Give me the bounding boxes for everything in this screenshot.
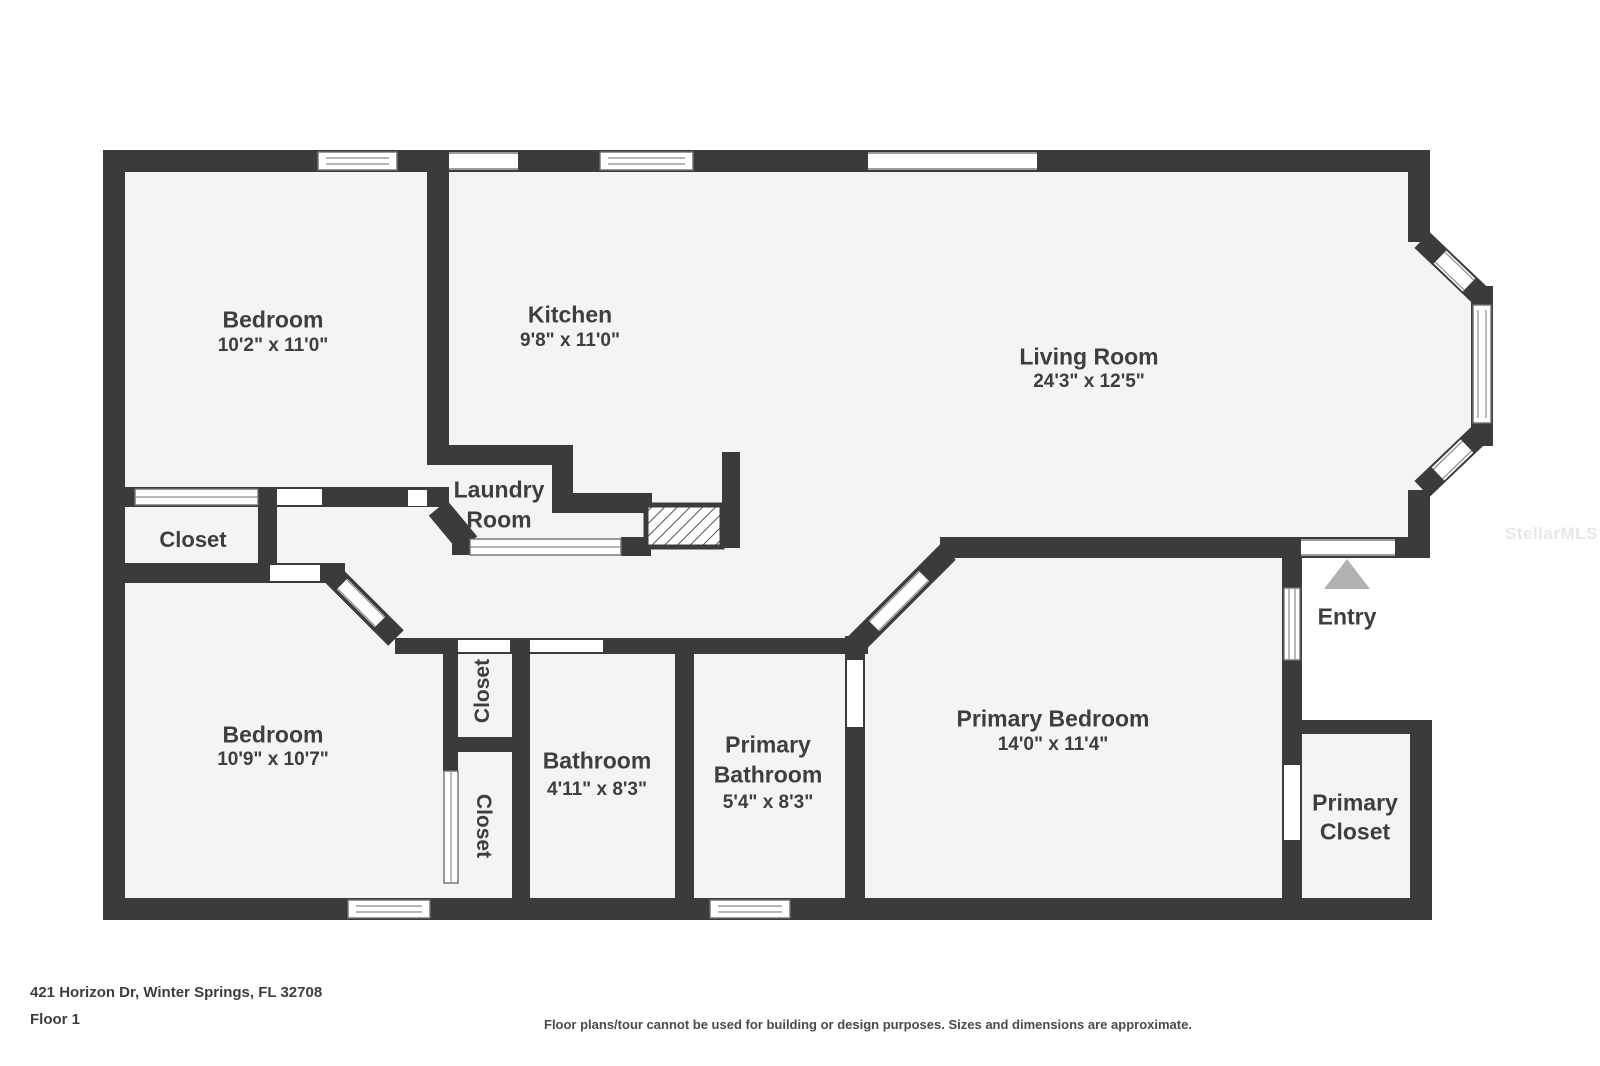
closet-lower-label: Closet — [471, 794, 495, 858]
primary-closet-label-line2: Closet — [1320, 819, 1390, 846]
primary-bathroom-dimensions: 5'4" x 8'3" — [723, 792, 813, 814]
primary-bedroom-label: Primary Bedroom — [956, 706, 1149, 733]
primary-bathroom-label-line1: Primary — [725, 732, 811, 759]
primary-closet-label-line1: Primary — [1312, 790, 1398, 817]
living-room-dimensions: 24'3" x 12'5" — [1033, 371, 1145, 393]
hall-closet-label: Closet — [159, 527, 226, 553]
primary-bedroom-dimensions: 14'0" x 11'4" — [998, 734, 1109, 756]
bedroom2-dimensions: 10'9" x 10'7" — [217, 749, 329, 771]
floor-plan-drawing — [0, 0, 1600, 1066]
bedroom2-label: Bedroom — [223, 722, 324, 749]
entry-arrow-icon — [1324, 559, 1370, 589]
laundry-room-label-line2: Room — [466, 507, 531, 534]
utility-hatch-box — [646, 505, 722, 547]
bathroom-label: Bathroom — [543, 748, 652, 775]
bedroom1-label: Bedroom — [223, 307, 324, 334]
bedroom1-dimensions: 10'2" x 11'0" — [218, 335, 329, 357]
living-room-label: Living Room — [1019, 344, 1158, 371]
stellar-mls-watermark: StellarMLS — [1505, 524, 1598, 544]
floor-plan-page: Bedroom 10'2" x 11'0" Kitchen 9'8" x 11'… — [0, 0, 1600, 1066]
floor-number: Floor 1 — [30, 1011, 80, 1028]
kitchen-dimensions: 9'8" x 11'0" — [520, 330, 620, 352]
bathroom-dimensions: 4'11" x 8'3" — [547, 779, 647, 801]
laundry-room-label-line1: Laundry — [454, 477, 545, 504]
primary-bathroom-label-line2: Bathroom — [714, 762, 823, 789]
closet-upper-label: Closet — [471, 659, 495, 723]
entry-label: Entry — [1318, 604, 1377, 631]
kitchen-label: Kitchen — [528, 302, 612, 329]
address-text: 421 Horizon Dr, Winter Springs, FL 32708 — [30, 984, 322, 1001]
disclaimer-text: Floor plans/tour cannot be used for buil… — [544, 1017, 1192, 1032]
